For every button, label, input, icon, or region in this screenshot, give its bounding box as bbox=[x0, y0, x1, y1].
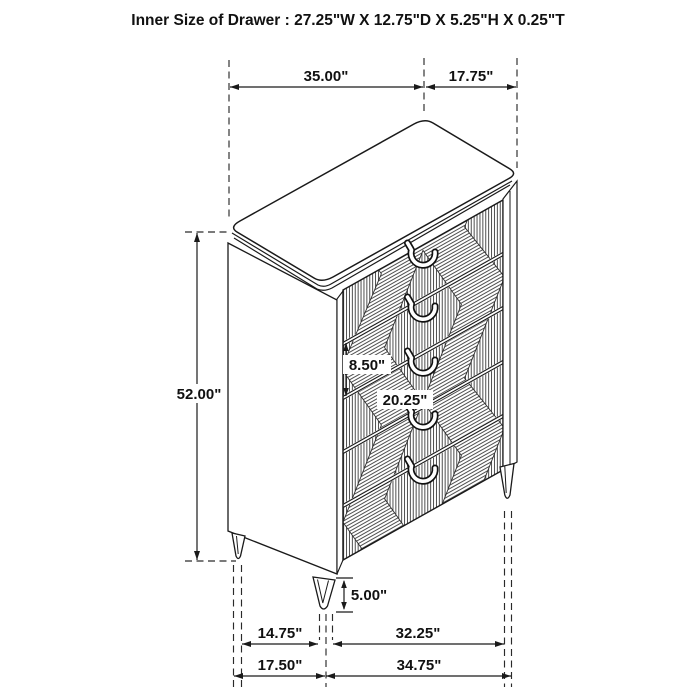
dim-label-top-width: 35.00" bbox=[304, 68, 349, 85]
diagram-title: Inner Size of Drawer : 27.25"W X 12.75"D… bbox=[131, 12, 565, 29]
front-left-leg bbox=[232, 533, 245, 559]
dim-label-drawer-height: 8.50" bbox=[349, 357, 385, 374]
dim-label-base-outer-left: 17.50" bbox=[258, 657, 303, 674]
dim-label-drawer-width: 20.25" bbox=[383, 392, 428, 409]
front-center-leg bbox=[313, 577, 335, 609]
dimension-diagram-svg: Inner Size of Drawer : 27.25"W X 12.75"D… bbox=[0, 0, 700, 700]
dim-label-base-inner-right: 32.25" bbox=[396, 625, 441, 642]
cabinet-side-panel bbox=[228, 243, 337, 574]
cabinet-right-edge bbox=[503, 181, 517, 470]
dim-label-base-inner-left: 14.75" bbox=[258, 625, 303, 642]
dimension-diagram-page: Inner Size of Drawer : 27.25"W X 12.75"D… bbox=[0, 0, 700, 700]
right-leg bbox=[500, 464, 514, 499]
dim-label-leg-height: 5.00" bbox=[351, 587, 387, 604]
cabinet-corner-post bbox=[337, 291, 343, 574]
dim-label-top-depth: 17.75" bbox=[449, 68, 494, 85]
dim-label-base-outer-right: 34.75" bbox=[397, 657, 442, 674]
dim-label-height: 52.00" bbox=[177, 386, 222, 403]
